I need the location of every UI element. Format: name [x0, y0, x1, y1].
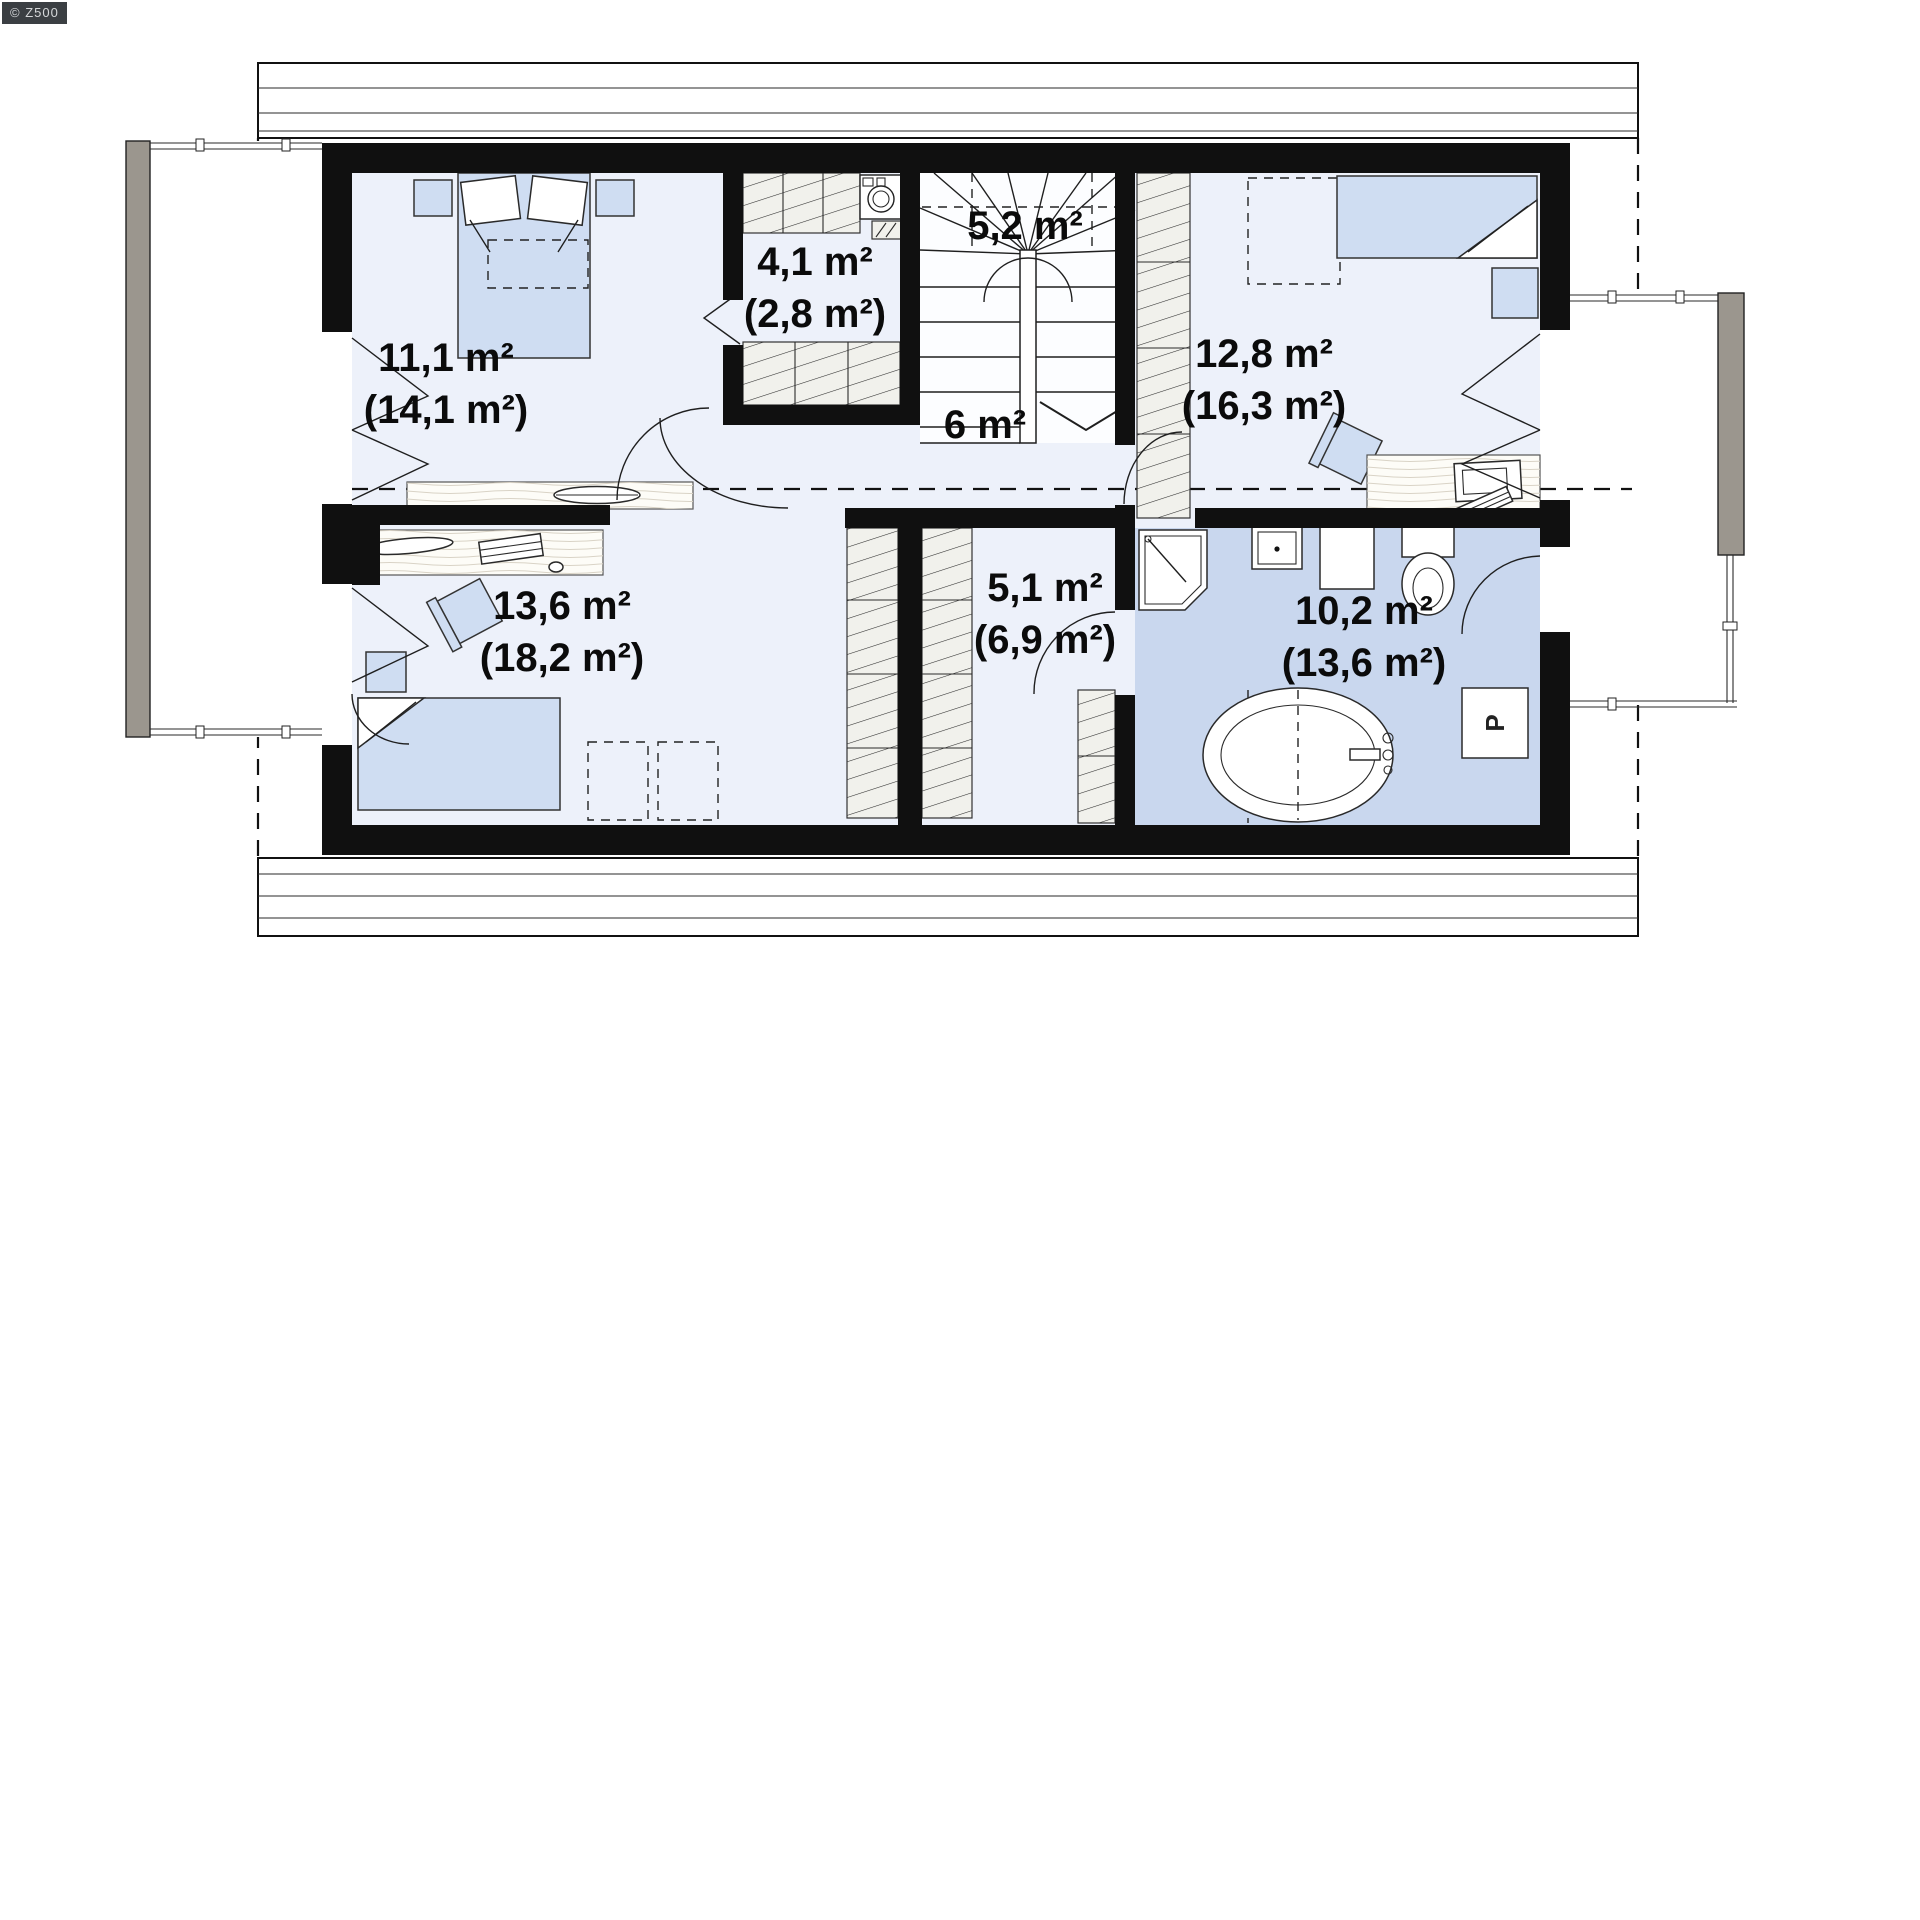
nightstand [414, 180, 452, 216]
sink-icon [1252, 527, 1302, 569]
nightstand [596, 180, 634, 216]
room-label-staircase: 5,2 m² [967, 200, 1083, 252]
room-label-bedroom-2: 12,8 m²(16,3 m²) [1182, 328, 1347, 432]
balcony-left-railing [126, 141, 150, 737]
bathroom-cabinet [1320, 527, 1374, 589]
room-label-bedroom-3: 13,6 m²(18,2 m²) [480, 580, 645, 684]
pillow [528, 176, 588, 225]
nightstand [1492, 268, 1538, 318]
floor-plan-page: © Z500 [0, 0, 1920, 1920]
shelf-desk [407, 482, 693, 509]
room-label-hallway: 6 m² [944, 399, 1026, 451]
mouse-icon [549, 562, 563, 572]
shower-icon [1139, 530, 1207, 610]
roof-overhang-top [258, 63, 1638, 138]
desk [353, 530, 603, 575]
room-label-bathroom: 10,2 m²(13,6 m²) [1282, 585, 1447, 689]
balcony-right-railing [1718, 293, 1744, 555]
room-label-bedroom-1: 11,1 m²(14,1 m²) [364, 332, 529, 436]
washing-machine-label: P [1482, 714, 1508, 731]
balcony-right [1570, 291, 1744, 710]
balcony-left [126, 139, 322, 738]
pillow [461, 176, 521, 225]
floor-plan-drawing [0, 0, 1920, 980]
bathtub-icon [1203, 688, 1393, 822]
room-label-wardrobe: 4,1 m²(2,8 m²) [744, 236, 886, 340]
roof-overhang-bottom [258, 858, 1638, 936]
room-label-closet: 5,1 m²(6,9 m²) [974, 562, 1116, 666]
